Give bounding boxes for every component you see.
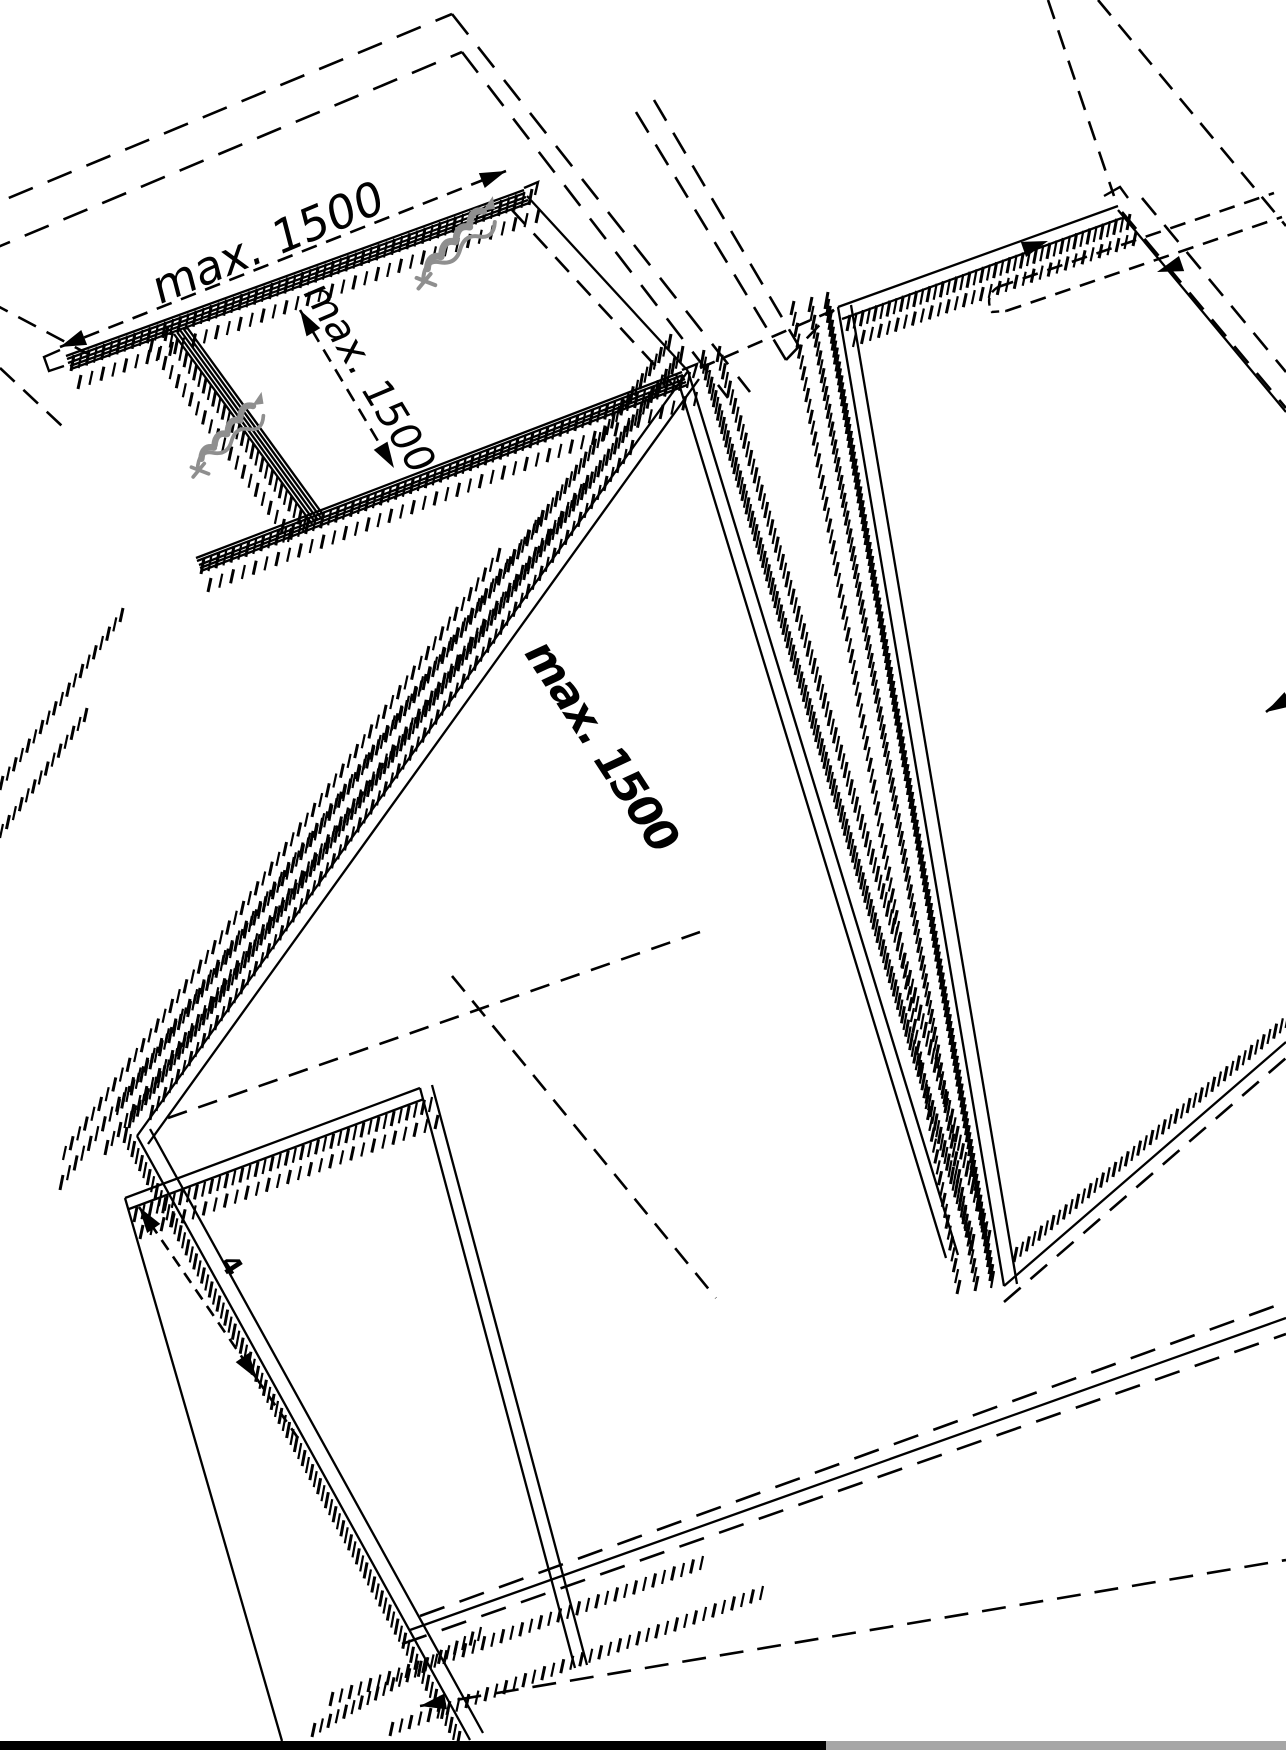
technical-drawing: max. 1500 max. 1500 max. 1500 4: [0, 0, 1286, 1750]
drawing-canvas: max. 1500 max. 1500 max. 1500 4: [0, 0, 1286, 1750]
bottom-border-gray: [826, 1741, 1286, 1750]
bottom-border-black: [0, 1741, 826, 1750]
